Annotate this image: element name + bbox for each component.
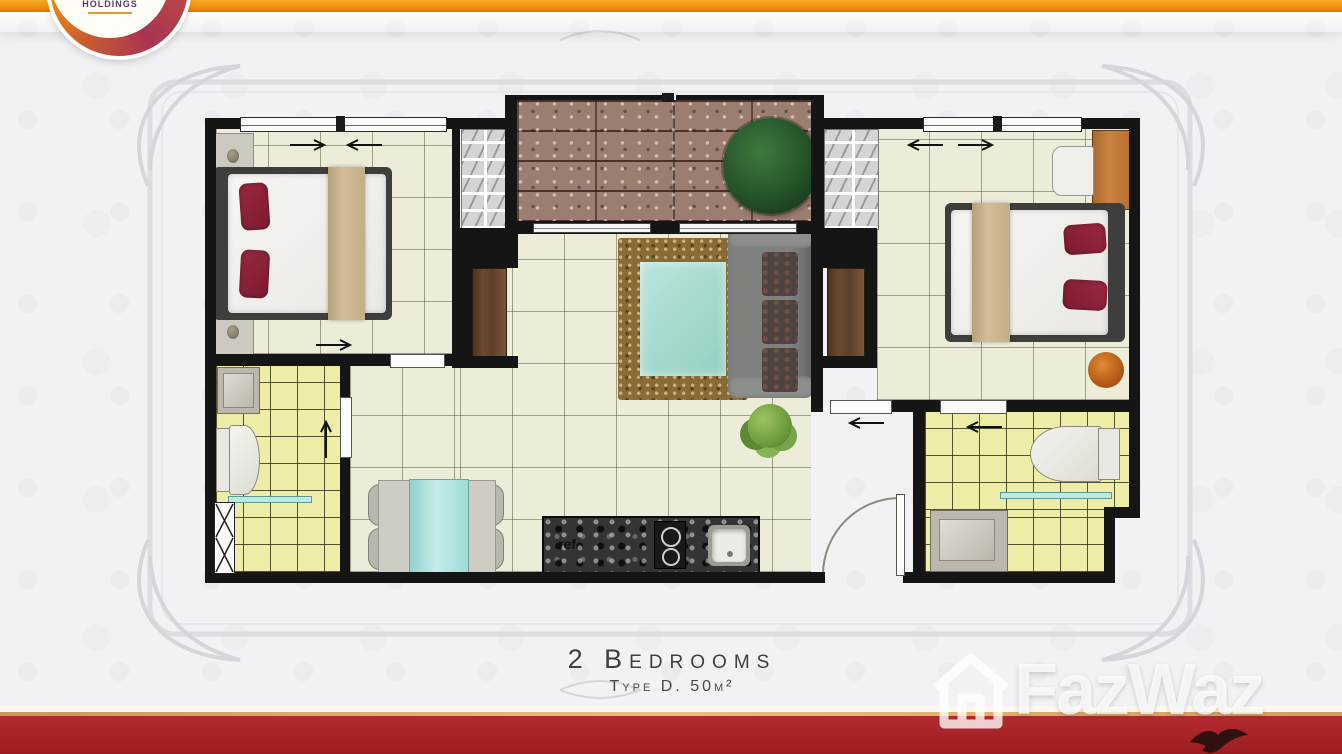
balcony-tree (723, 118, 819, 214)
fazwaz-watermark: FazWaz (928, 648, 1263, 732)
toilet (1030, 426, 1102, 482)
closet-left (461, 129, 507, 230)
wall-segment (458, 268, 472, 368)
bed-runner (972, 203, 1010, 342)
sofa-cushion (762, 348, 798, 392)
wall-segment (865, 268, 877, 358)
wall-segment (903, 572, 1115, 583)
dining-table-glass (409, 479, 469, 575)
logo-face: HEIGHTS HOLDINGS (50, 0, 170, 38)
window-mullion (336, 116, 345, 131)
bird-silhouette-icon (1188, 726, 1258, 754)
sofa-cushion (762, 300, 798, 344)
plan-subtitle: Type D. 50m² (372, 678, 972, 696)
wall-segment (443, 354, 460, 366)
door-swing-arrow (314, 338, 354, 352)
wall-segment (811, 95, 824, 233)
door-swing-arrow (318, 414, 334, 460)
wardrobe-left (472, 268, 507, 358)
top-accent-bar (0, 0, 1342, 12)
bed-runner (328, 167, 365, 320)
door-sill (830, 400, 892, 414)
wall-segment (913, 412, 925, 583)
pillow (1062, 279, 1108, 311)
bed-left (213, 167, 392, 320)
wall-segment (811, 233, 823, 412)
closet-right (824, 129, 879, 230)
wall-segment (811, 356, 877, 368)
bathroom-sink (930, 510, 1008, 572)
door-swing-arrow (964, 420, 1004, 434)
house-outline-icon (928, 648, 1014, 732)
floor-plan-page: ref HEIGHTS (0, 0, 1342, 754)
door-swing-arrow (846, 416, 886, 430)
sofa-cushion (762, 252, 798, 296)
bed-right (945, 203, 1125, 342)
watermark-text: FazWaz (1014, 649, 1263, 731)
cooktop (654, 521, 686, 569)
door-swing-arrow (344, 138, 384, 152)
kitchen-counter: ref (542, 516, 760, 574)
shower-glass-panel (228, 496, 312, 503)
pillow (238, 182, 270, 231)
door-sill (340, 397, 352, 458)
pillow (1063, 223, 1107, 256)
wall-segment (340, 366, 350, 397)
pillow (239, 249, 270, 298)
door-swing-arrow (288, 138, 328, 152)
shower-glass-panel (1000, 492, 1112, 499)
shower-door (214, 502, 235, 574)
floor-plant (748, 404, 792, 448)
window-mullion (993, 116, 1002, 131)
dining-table (378, 480, 496, 574)
wall-segment (505, 95, 517, 233)
wall-segment (1129, 118, 1140, 518)
logo-tagline-rule (88, 12, 132, 14)
wall-segment (205, 354, 390, 366)
door-swing-arrow (956, 138, 996, 152)
kitchen-sink (708, 525, 750, 566)
bathroom-sink (217, 367, 260, 414)
door-sill (940, 400, 1007, 414)
desk (1092, 130, 1131, 210)
wall-segment (505, 95, 662, 100)
toilet (229, 425, 260, 495)
wall-segment (458, 228, 518, 268)
wall-segment (205, 572, 825, 583)
top-bar-shadow (0, 12, 1342, 32)
logo-line2: HOLDINGS (82, 0, 138, 9)
wall-segment (1005, 400, 1140, 412)
wall-segment (452, 356, 518, 368)
window (923, 117, 1082, 132)
sofa (728, 226, 814, 398)
wall-segment (676, 95, 823, 100)
toilet-tank (1098, 428, 1120, 480)
refrigerator-label: ref (558, 536, 576, 552)
sliding-door (517, 221, 811, 234)
door-swing-arrow (905, 138, 945, 152)
pouf (1088, 352, 1124, 388)
coffee-table (640, 262, 726, 376)
wall-segment (340, 456, 350, 583)
plan-title: 2 Bedrooms (372, 644, 972, 675)
wardrobe-right (827, 268, 865, 358)
door-sill (390, 354, 445, 368)
wall-segment (823, 228, 877, 268)
entry-door (896, 494, 905, 576)
desk-chair (1052, 146, 1094, 196)
wall-segment (662, 93, 674, 102)
